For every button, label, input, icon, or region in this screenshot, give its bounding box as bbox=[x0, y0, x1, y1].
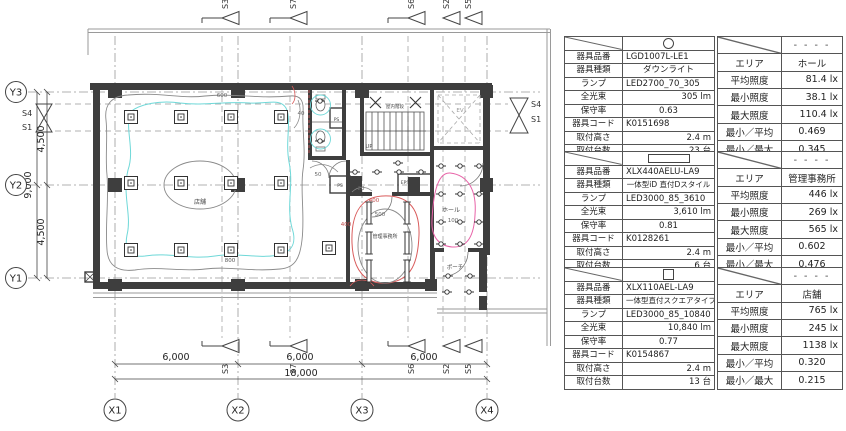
row-value: XLX440AELU-LA9 bbox=[623, 165, 715, 179]
fixture-header-diagonal bbox=[565, 152, 623, 166]
downlight-fixture bbox=[474, 192, 484, 196]
isolux-100: 100 bbox=[448, 218, 459, 224]
grid-label-y1: Y1 bbox=[9, 274, 22, 285]
square-fixture-symbol-icon bbox=[663, 269, 674, 280]
section-label-s5-bottom: S5 bbox=[464, 364, 473, 374]
row-label: 取付高さ bbox=[565, 131, 623, 145]
illum-header-dashes: - - - - bbox=[782, 37, 843, 54]
row-label: 最小／平均 bbox=[718, 123, 782, 140]
row-label: 保守率 bbox=[565, 219, 623, 233]
section-markers-top bbox=[202, 12, 482, 25]
downlight-fixture bbox=[474, 242, 484, 246]
row-label: 最大照度 bbox=[718, 221, 782, 238]
fixture-spec-table-2: 器具品番XLX440AELU-LA9 器具種類一体型iD 直付Dスタイル ランプ… bbox=[564, 151, 715, 274]
row-value: 2.4 m bbox=[623, 362, 715, 376]
room-label-porch: ポーチ bbox=[447, 264, 464, 271]
row-value: XLX110AEL-LA9 bbox=[623, 281, 715, 295]
downlight-fixture bbox=[464, 290, 474, 294]
lighting-calc-drawing: { "drawing": { "plan": { "grid_x_labels"… bbox=[0, 0, 846, 427]
square-fixture bbox=[125, 244, 138, 257]
toilet-fixtures bbox=[312, 95, 342, 151]
downlight-fixture bbox=[442, 290, 452, 294]
section-label-s1-left: S1 bbox=[22, 123, 32, 132]
room-label-ps-toilet: PS bbox=[334, 117, 340, 123]
isolux-50: 50 bbox=[315, 172, 322, 178]
row-value: K0128261 bbox=[623, 233, 715, 247]
row-label: 器具コード bbox=[565, 233, 623, 247]
downlight-fixture bbox=[393, 161, 403, 165]
row-value: 0.215 bbox=[782, 372, 843, 389]
room-label-office: 管理事務所 bbox=[372, 233, 397, 240]
section-label-s6-top: S6 bbox=[407, 0, 416, 9]
row-label: 取付台数 bbox=[565, 376, 623, 390]
section-label-s6-bottom: S6 bbox=[407, 364, 416, 374]
row-label: エリア bbox=[718, 54, 782, 71]
row-value: 3,610 lm bbox=[623, 206, 715, 220]
square-fixture bbox=[125, 111, 138, 124]
row-label: ランプ bbox=[565, 308, 623, 322]
room-label-hall: ホール bbox=[442, 207, 460, 214]
illuminance-table-2: - - - - エリア管理事務所 平均照度446 lx 最小照度269 lx 最… bbox=[717, 151, 843, 274]
row-value: ダウンライト bbox=[623, 64, 715, 78]
fixture-spec-table-3: 器具品番XLX110AEL-LA9 器具種類一体型直付スクエアタイプ ランプLE… bbox=[564, 267, 715, 390]
room-label-store: 店舗 bbox=[194, 198, 206, 206]
fixture-symbol-cell bbox=[623, 268, 715, 282]
downlight-fixture bbox=[436, 220, 446, 224]
grid-label-y3: Y3 bbox=[9, 88, 22, 99]
linear-fixture bbox=[403, 232, 411, 254]
square-fixture bbox=[175, 177, 188, 190]
row-value: 245 lx bbox=[782, 320, 843, 337]
row-value: 1138 lx bbox=[782, 337, 843, 354]
square-fixture bbox=[175, 111, 188, 124]
grid-label-y2: Y2 bbox=[9, 181, 22, 192]
downlight-fixture bbox=[474, 220, 484, 224]
illum-header-dashes: - - - - bbox=[782, 152, 843, 169]
fixture-spec-table-1: 器具品番LGD1007L-LE1 器具種類ダウンライト ランプLED2700_7… bbox=[564, 36, 715, 159]
row-label: 最小／平均 bbox=[718, 354, 782, 371]
row-value: 446 lx bbox=[782, 186, 843, 203]
section-label-s3-top: S3 bbox=[221, 0, 230, 9]
row-label: 最大照度 bbox=[718, 106, 782, 123]
grid-label-x1: X1 bbox=[108, 406, 121, 417]
illuminance-table-1: - - - - エリアホール 平均照度81.4 lx 最小照度38.1 lx 最… bbox=[717, 36, 843, 159]
section-label-s3-bottom: S3 bbox=[221, 364, 230, 374]
row-label: 最小照度 bbox=[718, 204, 782, 221]
downlight-fixture bbox=[455, 242, 465, 246]
room-label-up: UP bbox=[366, 144, 373, 150]
downlight-fixture bbox=[455, 164, 465, 168]
section-label-s5-top: S5 bbox=[464, 0, 473, 9]
row-value: 305 lm bbox=[623, 91, 715, 105]
row-label: 器具種類 bbox=[565, 179, 623, 193]
downlight-fixture bbox=[436, 164, 446, 168]
row-value: 一体型iD 直付Dスタイル bbox=[623, 179, 715, 193]
row-value: LED3000_85_10840 bbox=[623, 308, 715, 322]
table-group-linear: 器具品番XLX440AELU-LA9 器具種類一体型iD 直付Dスタイル ランプ… bbox=[564, 151, 843, 274]
row-value: 81.4 lx bbox=[782, 71, 843, 88]
row-value: 0.469 bbox=[782, 123, 843, 140]
room-label-stairs: 屋内階段 bbox=[386, 103, 404, 110]
row-value: LED2700_70_305 bbox=[623, 77, 715, 91]
row-value: K0154867 bbox=[623, 349, 715, 363]
room-label-ev: EV bbox=[456, 108, 463, 114]
grid-lines bbox=[28, 36, 540, 398]
row-label: 器具コード bbox=[565, 349, 623, 363]
grid-label-x3: X3 bbox=[355, 406, 368, 417]
row-value: 0.77 bbox=[623, 335, 715, 349]
row-label: 最小／平均 bbox=[718, 238, 782, 255]
row-value: 765 lx bbox=[782, 302, 843, 319]
row-label: 最小照度 bbox=[718, 320, 782, 337]
section-label-s4-right: S4 bbox=[531, 100, 541, 109]
square-fixture bbox=[323, 242, 336, 255]
linear-fixture-symbol-icon bbox=[648, 154, 690, 163]
row-value: 13 台 bbox=[623, 376, 715, 390]
row-value: LED3000_85_3610 bbox=[623, 192, 715, 206]
linear-fixture bbox=[365, 202, 373, 224]
isolux-800: 800 bbox=[225, 258, 236, 264]
isolux-500: 500 bbox=[375, 212, 386, 218]
square-fixture bbox=[225, 177, 238, 190]
isolux-400-left: 400 bbox=[341, 222, 352, 228]
downlight-fixture bbox=[465, 274, 475, 278]
row-label: 平均照度 bbox=[718, 302, 782, 319]
isolux-400-top: 400 bbox=[369, 198, 380, 204]
table-group-square: 器具品番XLX110AEL-LA9 器具種類一体型直付スクエアタイプ ランプLE… bbox=[564, 267, 843, 390]
square-fixture bbox=[225, 111, 238, 124]
downlight-fixture bbox=[436, 192, 446, 196]
illuminance-table-3: - - - - エリア店舗 平均照度765 lx 最小照度245 lx 最大照度… bbox=[717, 267, 843, 390]
square-fixture bbox=[275, 244, 288, 257]
dim-6000-2: 6,000 bbox=[286, 352, 313, 363]
row-value: 0.602 bbox=[782, 238, 843, 255]
row-value: 2.4 m bbox=[623, 246, 715, 260]
row-value: 565 lx bbox=[782, 221, 843, 238]
row-label: 最大照度 bbox=[718, 337, 782, 354]
section-label-s2-top: S2 bbox=[442, 0, 451, 9]
illum-header-diagonal bbox=[718, 37, 782, 54]
grid-bubble-labels: X1 X2 X3 X4 Y3 Y2 Y1 bbox=[9, 88, 494, 417]
row-label: 全光束 bbox=[565, 91, 623, 105]
section-label-s7-bottom: S7 bbox=[289, 364, 298, 374]
row-label: 全光束 bbox=[565, 322, 623, 336]
fixture-header-diagonal bbox=[565, 268, 623, 282]
square-fixture bbox=[225, 244, 238, 257]
section-markers-bottom bbox=[202, 340, 482, 353]
section-label-s2-bottom: S2 bbox=[442, 364, 451, 374]
walls bbox=[90, 83, 493, 310]
row-label: ランプ bbox=[565, 192, 623, 206]
table-group-downlight: 器具品番LGD1007L-LE1 器具種類ダウンライト ランプLED2700_7… bbox=[564, 36, 843, 159]
grid-label-x4: X4 bbox=[480, 406, 493, 417]
downlight-fixture bbox=[372, 170, 382, 174]
downlight-symbol-icon bbox=[663, 38, 674, 49]
row-value: 一体型直付スクエアタイプ bbox=[623, 295, 715, 309]
section-label-s4-left: S4 bbox=[22, 109, 32, 118]
row-label: 最小照度 bbox=[718, 89, 782, 106]
row-value: 0.81 bbox=[623, 219, 715, 233]
row-label: 保守率 bbox=[565, 335, 623, 349]
isolux-20: 20 bbox=[358, 186, 365, 192]
row-label: ランプ bbox=[565, 77, 623, 91]
row-label: エリア bbox=[718, 285, 782, 302]
row-value: 店舗 bbox=[782, 285, 843, 302]
row-label: 器具品番 bbox=[565, 165, 623, 179]
row-label: 取付高さ bbox=[565, 362, 623, 376]
dim-6000-3: 6,000 bbox=[410, 352, 437, 363]
row-value: 10,840 lm bbox=[623, 322, 715, 336]
square-fixtures bbox=[125, 111, 336, 257]
downlight-fixture bbox=[350, 170, 360, 174]
row-label: 保守率 bbox=[565, 104, 623, 118]
row-label: 器具コード bbox=[565, 118, 623, 132]
row-label: 器具種類 bbox=[565, 295, 623, 309]
row-value: LGD1007L-LE1 bbox=[623, 50, 715, 64]
room-label-eps: EPS bbox=[401, 180, 410, 186]
fixture-symbol-cell bbox=[623, 152, 715, 166]
row-label: 器具品番 bbox=[565, 281, 623, 295]
row-value: ホール bbox=[782, 54, 843, 71]
illum-header-diagonal bbox=[718, 152, 782, 169]
row-label: 最小／最大 bbox=[718, 372, 782, 389]
row-label: 全光束 bbox=[565, 206, 623, 220]
row-value: 38.1 lx bbox=[782, 89, 843, 106]
isolux-40: 40 bbox=[298, 111, 305, 117]
square-fixture bbox=[275, 177, 288, 190]
section-label-s1-right: S1 bbox=[531, 115, 541, 124]
row-value: 0.320 bbox=[782, 354, 843, 371]
row-label: 平均照度 bbox=[718, 186, 782, 203]
square-fixture bbox=[275, 111, 288, 124]
section-labels-bottom: S3 S7 S6 S2 S5 bbox=[221, 364, 473, 374]
row-label: 器具種類 bbox=[565, 64, 623, 78]
room-label-ps-corridor: PS bbox=[337, 183, 343, 189]
section-labels-top: S3 S7 S6 S2 S5 bbox=[221, 0, 473, 9]
floor-plan: 6,000 6,000 6,000 18,000 9,000 4,500 4,5… bbox=[0, 0, 556, 427]
downlight-fixture bbox=[455, 192, 465, 196]
fixture-symbol-cell bbox=[623, 37, 715, 51]
row-label: 器具品番 bbox=[565, 50, 623, 64]
row-value: 2.4 m bbox=[623, 131, 715, 145]
illum-header-dashes: - - - - bbox=[782, 268, 843, 285]
row-label: 平均照度 bbox=[718, 71, 782, 88]
row-label: 取付高さ bbox=[565, 246, 623, 260]
grid-label-x2: X2 bbox=[231, 406, 244, 417]
square-fixture bbox=[175, 244, 188, 257]
illum-header-diagonal bbox=[718, 268, 782, 285]
dimension-lines bbox=[34, 89, 490, 382]
row-value: 110.4 lx bbox=[782, 106, 843, 123]
row-value: 管理事務所 bbox=[782, 169, 843, 186]
row-value: 0.63 bbox=[623, 104, 715, 118]
dim-6000-1: 6,000 bbox=[162, 352, 189, 363]
row-value: 269 lx bbox=[782, 204, 843, 221]
floor-plan-svg: 6,000 6,000 6,000 18,000 9,000 4,500 4,5… bbox=[0, 0, 556, 427]
dim-4500-2: 4,500 bbox=[36, 218, 47, 245]
square-fixture bbox=[125, 177, 138, 190]
row-value: K0151698 bbox=[623, 118, 715, 132]
elevator-shaft bbox=[438, 95, 480, 143]
isolux-600: 600 bbox=[217, 93, 228, 99]
section-label-s7-top: S7 bbox=[289, 0, 298, 9]
row-label: エリア bbox=[718, 169, 782, 186]
fixture-header-diagonal bbox=[565, 37, 623, 51]
